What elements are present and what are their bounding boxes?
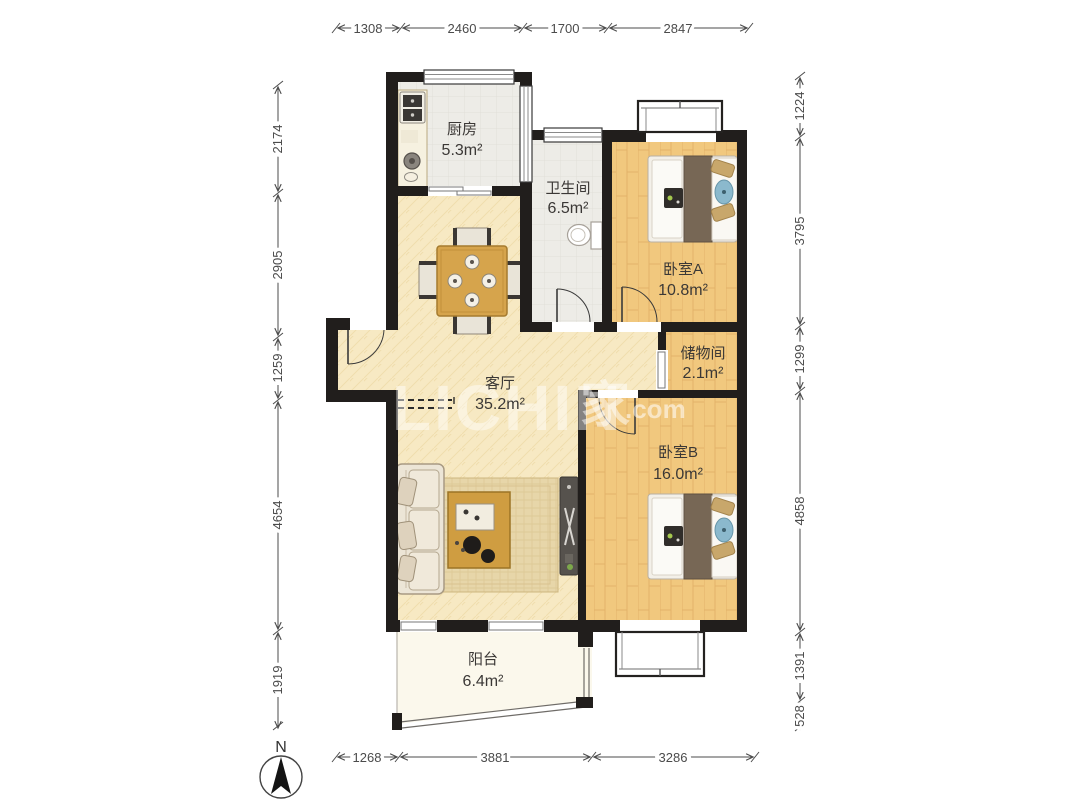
storage-area: 2.1m² [683,365,725,382]
living-label: 客厅 [485,375,515,392]
cutting-board [401,130,418,143]
dim-bottom-1: 3881 [481,750,510,765]
dim-right-5: 528 [792,705,807,727]
dining-chair-bottom [456,316,488,334]
dim-right-3: 4858 [792,497,807,526]
dim-right-0: 1224 [792,92,807,121]
floorplan-page: LICHIN 家 .com 厨房 5.3m² 卫生间 6.5m² 卧室A 10.… [0,0,1080,810]
bathroom-label: 卫生间 [545,180,590,197]
north-arrow-icon [271,757,291,794]
watermark-com: .com [625,394,686,424]
wall-bath-beda-divider [602,140,612,322]
dim-top-2: 1700 [551,21,580,36]
balcony-post-mid [576,697,593,708]
wall-living-west-upper [386,196,398,318]
plant [567,564,573,570]
dim-chain-right: 1224 3795 1299 4858 1391 528 [792,72,807,731]
balcony-post-top [578,632,593,647]
compass-n-label: N [275,739,287,756]
bedroom-a-area: 10.8m² [658,282,708,299]
dim-chain-bottom: 1268 3881 3286 [332,750,759,765]
bathroom-top-window [544,128,602,142]
decor-bowl [463,536,481,554]
dim-chain-top: 1308 2460 1700 2847 [332,21,753,36]
dining-chair-top [456,228,488,246]
bed-runner [684,156,712,242]
dim-chain-left: 2174 2905 1259 4654 1919 [270,81,285,730]
living-furniture [395,464,578,594]
bed-tray [664,526,683,546]
dim-left-1: 2905 [270,251,285,280]
bed-runner [684,494,712,579]
entry-alcove-floor [334,328,398,392]
kitchen-label: 厨房 [447,121,477,138]
wall-alcove-left [326,318,338,402]
kitchen-counter [398,90,427,187]
dim-right-2: 1299 [792,345,807,374]
kitchen-area: 5.3m² [442,142,484,159]
dim-bottom-0: 1268 [353,750,382,765]
dim-right-4: 1391 [792,652,807,681]
kitchen-right-window [520,86,532,182]
dim-top-3: 2847 [664,21,693,36]
dim-bottom-2: 3286 [659,750,688,765]
dim-right-1: 3795 [792,217,807,246]
dim-left-3: 4654 [270,501,285,530]
bed-b [648,494,737,579]
dim-left-4: 1919 [270,666,285,695]
sofa-pillow [396,521,417,550]
bed-tray [664,188,683,208]
kitchen-door [428,186,492,196]
balcony-label: 阳台 [468,651,498,668]
sofa [395,464,444,594]
kitchen-top-window [424,70,514,84]
balcony-area: 6.4m² [463,673,505,690]
decor-bowl-small [481,549,495,563]
living-area: 35.2m² [475,396,525,413]
dim-left-2: 1259 [270,354,285,383]
bedroom-a-label: 卧室A [663,261,703,278]
storage-label: 储物间 [680,345,725,362]
floorplan-drawing: LICHIN 家 .com 厨房 5.3m² 卫生间 6.5m² 卧室A 10.… [0,0,1080,810]
sink-basin [405,173,418,182]
bed-a [648,156,737,242]
bedroom-b-area: 16.0m² [653,466,703,483]
bedroom-a-bay-window [638,101,722,142]
dim-top-1: 2460 [448,21,477,36]
wall-kitchen-left [386,72,398,196]
dim-top-0: 1308 [354,21,383,36]
bathroom-area: 6.5m² [548,200,590,217]
wall-right-exterior [737,130,747,632]
balcony-post-left [392,713,402,730]
storage-door [656,350,668,390]
watermark-cjk: 家 [580,377,630,433]
tv-console [560,477,578,575]
bedroom-b-label: 卧室B [658,444,698,461]
dining-chair-left [419,264,437,296]
compass: N [260,739,302,798]
bedroom-b-bay-window [616,620,704,676]
dim-left-0: 2174 [270,125,285,154]
